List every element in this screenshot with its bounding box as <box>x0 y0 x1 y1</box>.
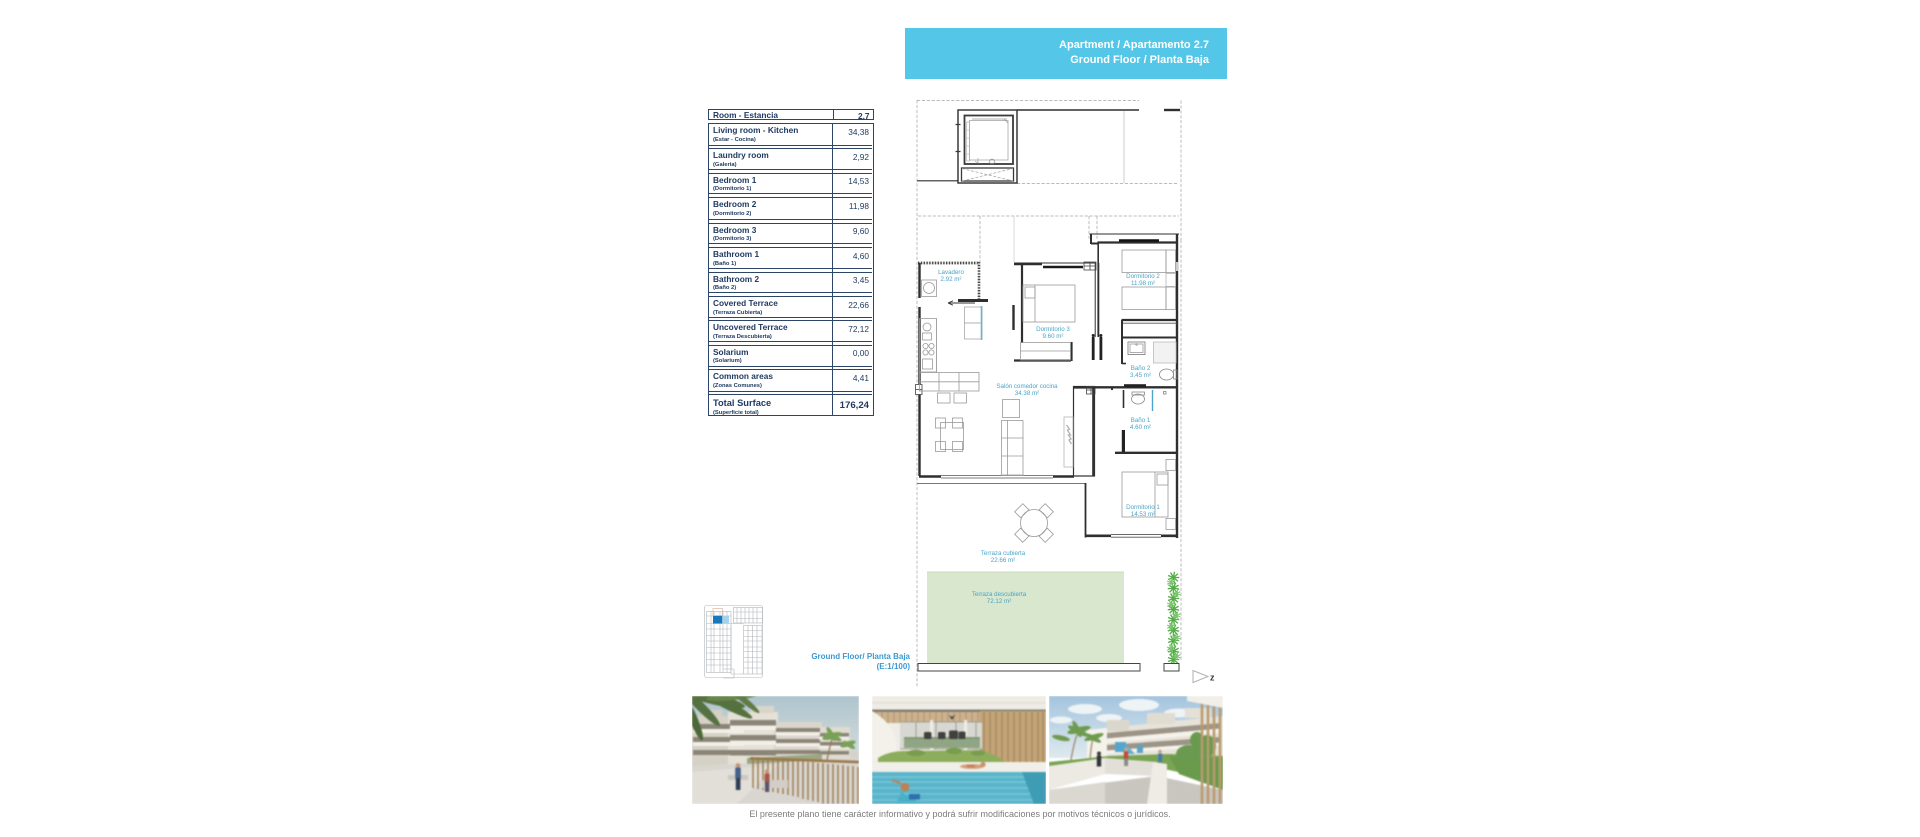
svg-text:22.66 m²: 22.66 m² <box>991 557 1015 564</box>
svg-text:2.92 m²: 2.92 m² <box>941 276 962 283</box>
svg-text:72.12 m²: 72.12 m² <box>987 598 1011 605</box>
svg-text:4.60 m²: 4.60 m² <box>1130 424 1151 431</box>
svg-text:Baño 2: Baño 2 <box>1131 365 1151 372</box>
svg-text:9.60 m²: 9.60 m² <box>1043 333 1064 340</box>
svg-text:34.38 m²: 34.38 m² <box>1015 390 1039 397</box>
svg-text:14.53 m²: 14.53 m² <box>1131 511 1155 518</box>
svg-text:Baño 1: Baño 1 <box>1131 417 1151 424</box>
svg-text:Terraza descubierta: Terraza descubierta <box>972 591 1027 598</box>
svg-text:3.45 m²: 3.45 m² <box>1130 372 1151 379</box>
svg-text:Dormitorio 3: Dormitorio 3 <box>1036 326 1070 333</box>
svg-text:z: z <box>1210 673 1215 683</box>
svg-text:11.98 m²: 11.98 m² <box>1131 280 1155 287</box>
svg-text:Salón comedor cocina: Salón comedor cocina <box>996 383 1058 390</box>
svg-text:Terraza cubierta: Terraza cubierta <box>981 550 1026 557</box>
svg-text:Dormitorio 2: Dormitorio 2 <box>1126 273 1160 280</box>
svg-text:Dormitorio 1: Dormitorio 1 <box>1126 504 1160 511</box>
svg-text:Lavadero: Lavadero <box>938 269 964 276</box>
